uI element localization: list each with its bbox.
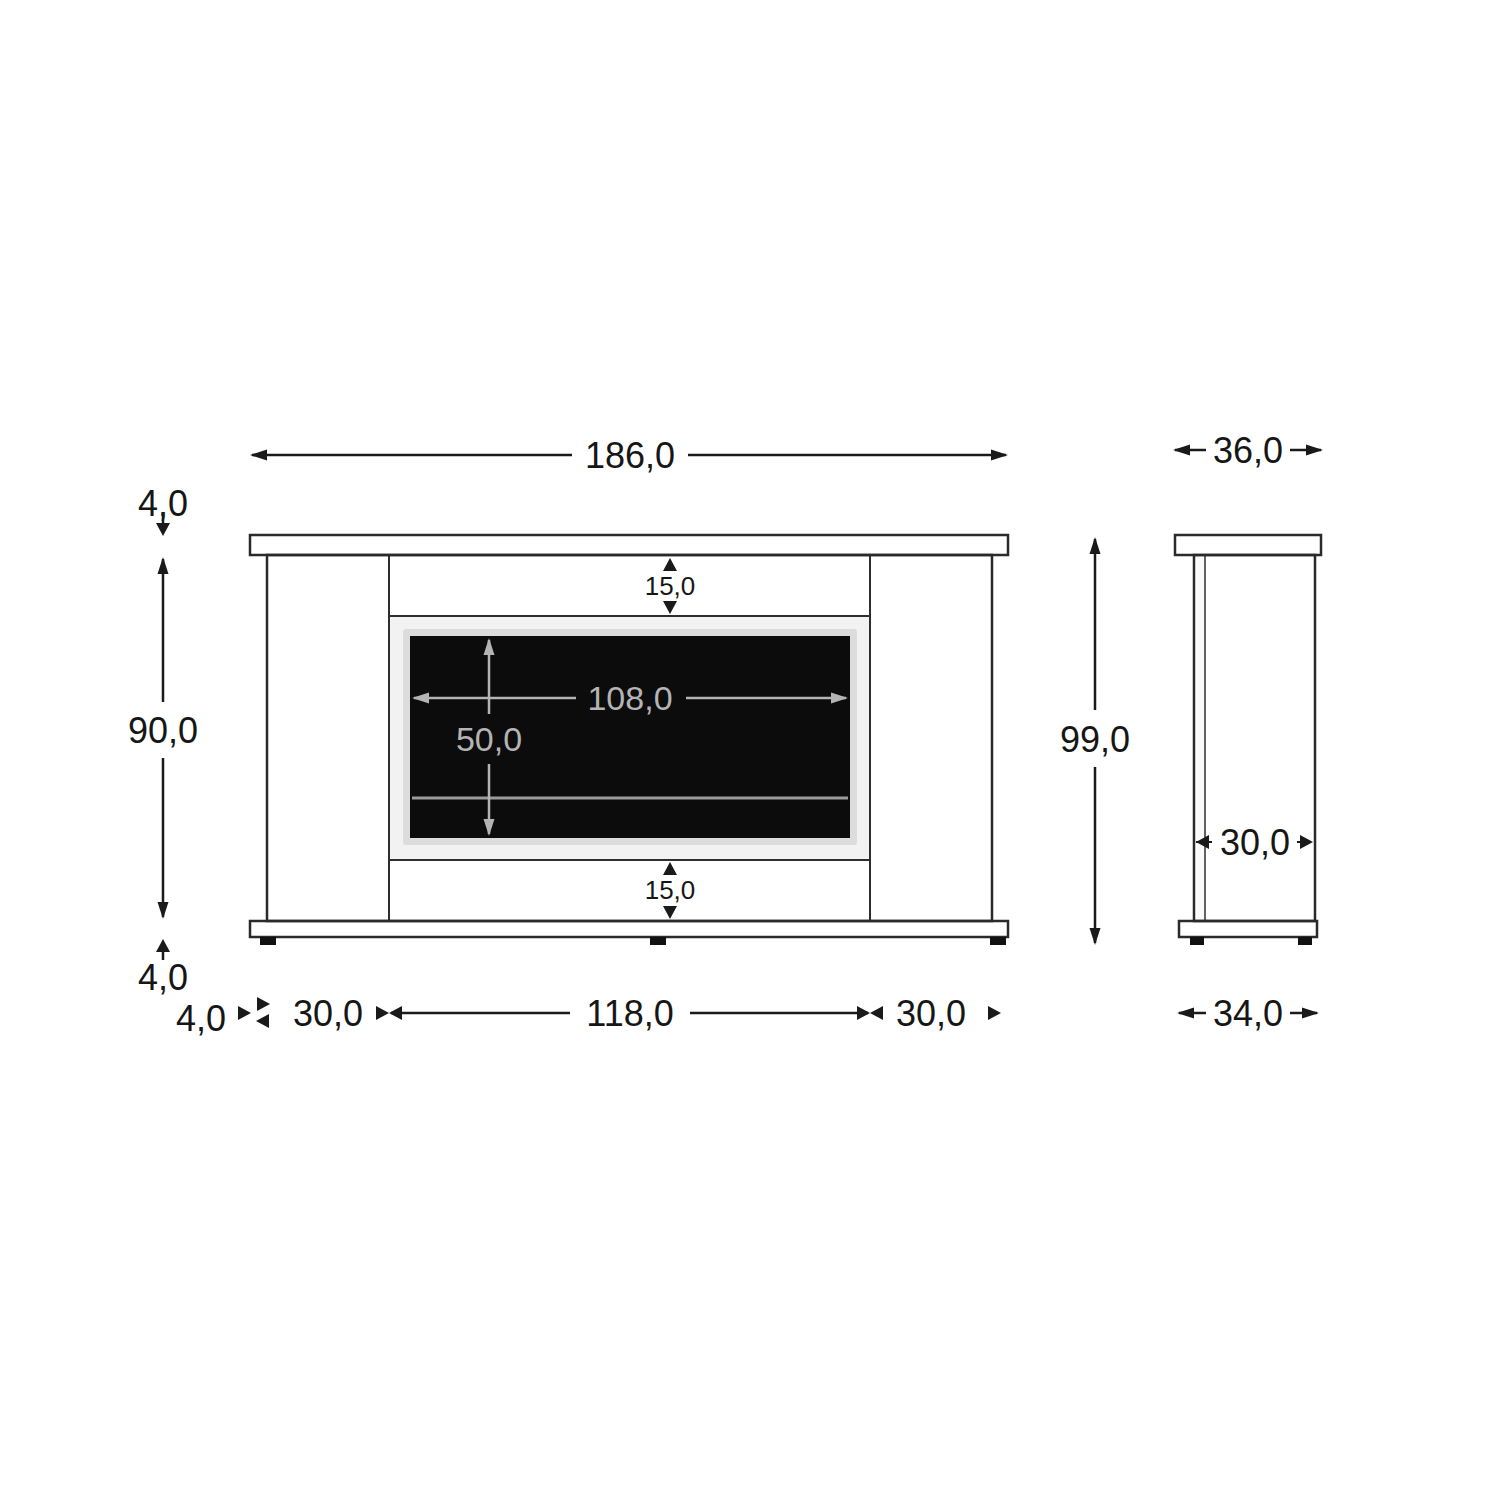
top-depth-dim-label: 36,0 [1213, 430, 1283, 471]
overall-height-dim-label: 99,0 [1060, 719, 1130, 760]
arrowhead-right [1300, 835, 1313, 849]
front-view [250, 535, 1008, 945]
front-bottom-board [250, 921, 1008, 937]
top-depth-dimension: 36,0 [1173, 430, 1323, 471]
arrowhead-left [250, 450, 267, 461]
side-view [1175, 535, 1321, 945]
side-top-board [1175, 535, 1321, 555]
arrowhead-overhang-left [256, 1014, 269, 1028]
base-overhang-dim-label: 4,0 [176, 998, 226, 1039]
side-foot-front [1190, 937, 1204, 945]
arrowhead-down [663, 601, 677, 614]
arrowhead-down [156, 523, 170, 536]
side-front-panel-strip [1197, 557, 1204, 919]
bottom-thickness-dimension: 4,0 [138, 939, 188, 998]
arrowhead-down [158, 902, 169, 919]
arrowhead-right-edge [988, 1006, 1001, 1020]
bottom-thickness-dim-label: 4,0 [138, 957, 188, 998]
side-bottom-board [1179, 921, 1317, 937]
bottom-chain-dimension: 4,0 30,0 118,0 30,0 [176, 993, 1001, 1039]
arrowhead-pillar-left [870, 1006, 883, 1020]
bottom-inset-dim-label: 15,0 [645, 875, 696, 905]
bottom-inset-dimension: 15,0 [645, 862, 696, 919]
window-width-dim-label: 108,0 [587, 679, 672, 717]
body-height-dimension: 90,0 [128, 557, 198, 919]
top-thickness-dimension: 4,0 [138, 483, 188, 537]
front-foot-right [990, 937, 1006, 945]
arrowhead-leader [238, 1006, 251, 1020]
left-pillar-dim-label: 30,0 [293, 993, 363, 1034]
arrowhead-pillar-right [376, 1006, 389, 1020]
body-height-dim-label: 90,0 [128, 710, 198, 751]
side-foot-back [1298, 937, 1312, 945]
dimension-diagram-page: 186,0 4,0 90,0 4,0 15,0 [0, 0, 1500, 1500]
arrowhead-overhang-right [257, 997, 270, 1011]
front-top-board [250, 535, 1008, 555]
front-foot-left [260, 937, 276, 945]
overall-width-dimension: 186,0 [250, 435, 1008, 476]
front-foot-center [650, 937, 666, 945]
base-depth-dimension: 34,0 [1177, 993, 1319, 1034]
side-body [1194, 555, 1315, 921]
body-depth-dim-label: 30,0 [1220, 822, 1290, 863]
arrowhead-right [1302, 1008, 1319, 1019]
overall-width-dim-label: 186,0 [585, 435, 675, 476]
arrowhead-right [1306, 445, 1323, 456]
fireplace-dimension-diagram: 186,0 4,0 90,0 4,0 15,0 [0, 0, 1500, 1500]
opening-width-dim-label: 118,0 [586, 993, 673, 1034]
window-height-dim-label: 50,0 [456, 720, 522, 758]
arrowhead-down [1090, 928, 1101, 945]
top-inset-dim-label: 15,0 [645, 571, 696, 601]
arrowhead-opening-right [857, 1006, 870, 1020]
arrowhead-right [991, 450, 1008, 461]
body-depth-dimension: 30,0 [1196, 822, 1313, 863]
right-pillar-dim-label: 30,0 [896, 993, 966, 1034]
top-inset-dimension: 15,0 [645, 558, 696, 614]
overall-height-dimension: 99,0 [1060, 537, 1130, 945]
base-depth-dim-label: 34,0 [1213, 993, 1283, 1034]
arrowhead-down [663, 906, 677, 919]
